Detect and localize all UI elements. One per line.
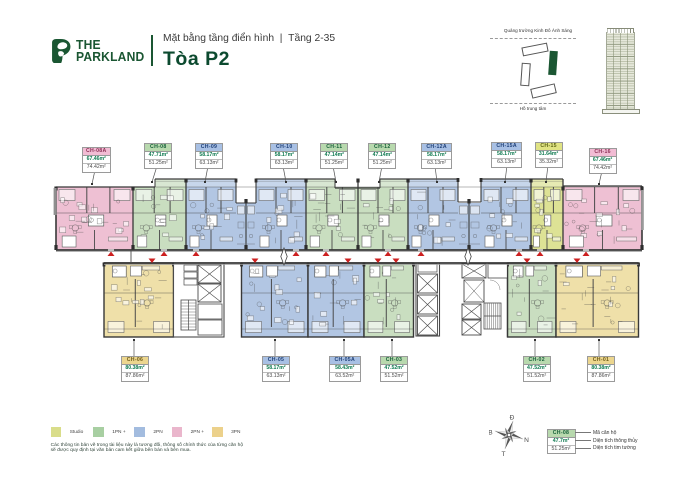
svg-text:Đ: Đ [510, 415, 515, 422]
svg-text:T: T [501, 451, 505, 458]
svg-text:B: B [489, 430, 493, 437]
svg-text:N: N [524, 437, 529, 444]
